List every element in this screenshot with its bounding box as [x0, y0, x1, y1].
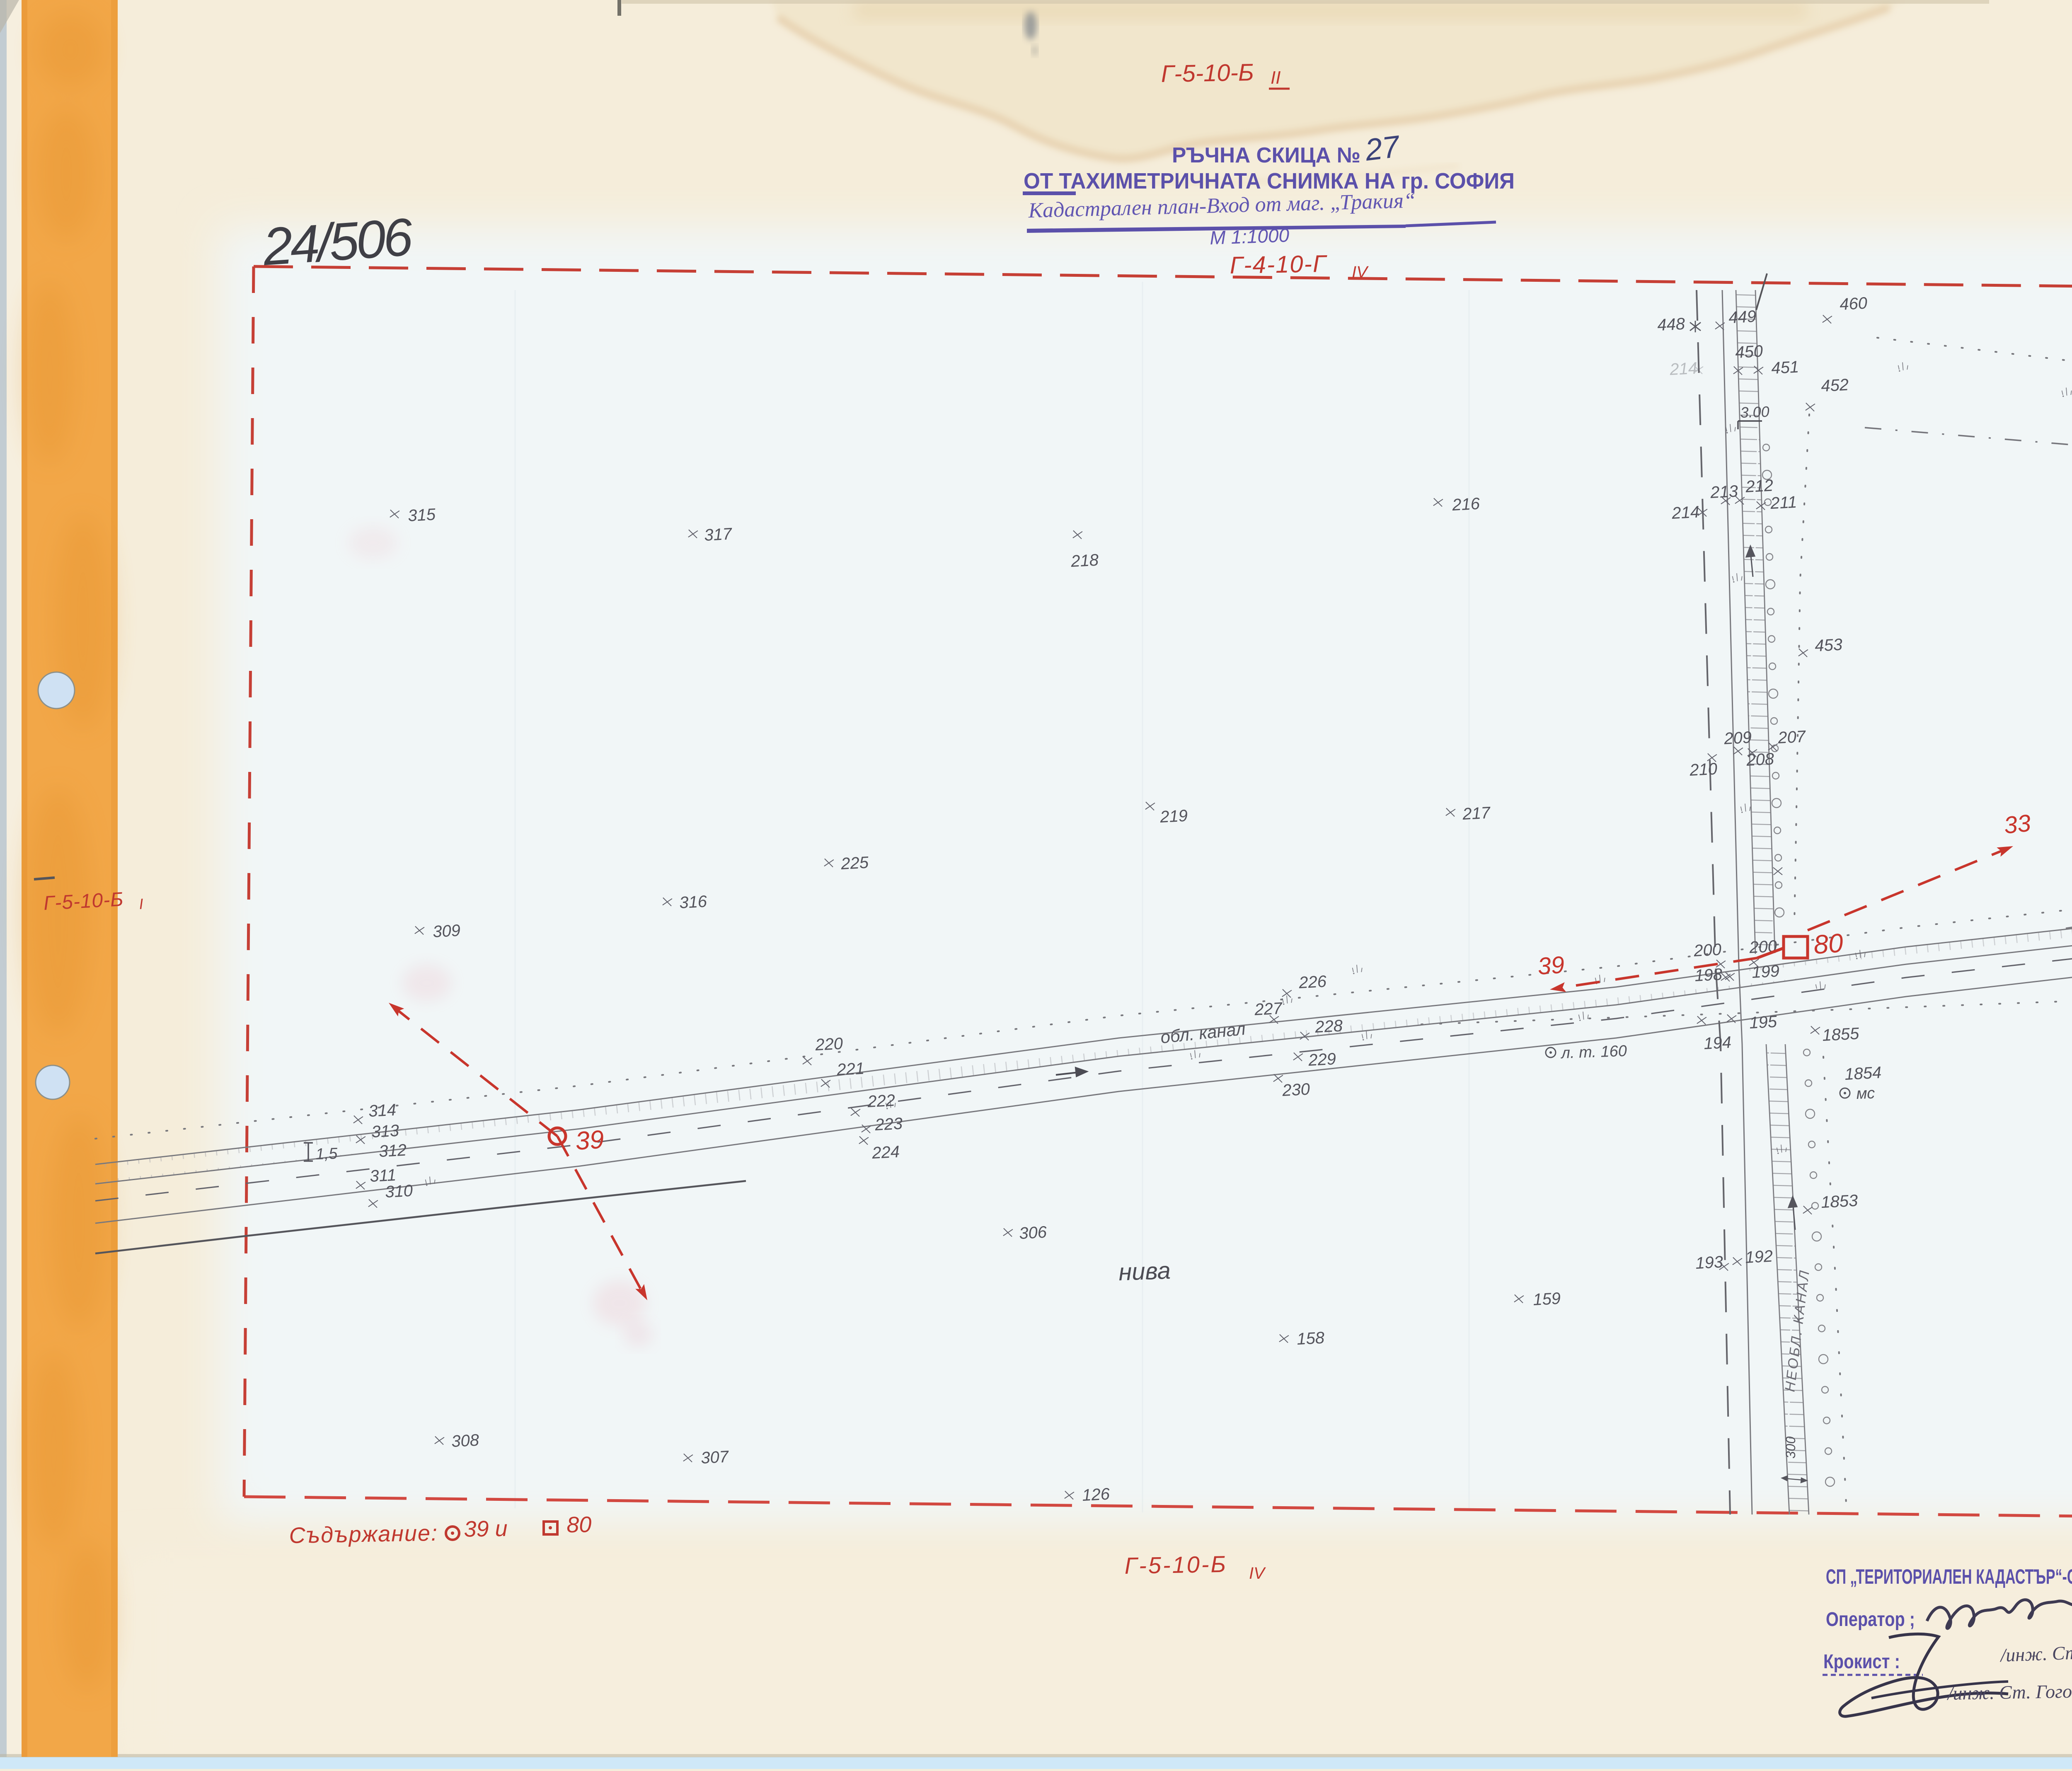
- svg-text:221: 221: [836, 1060, 865, 1079]
- svg-text:3.00: 3.00: [1740, 403, 1769, 421]
- svg-text:158: 158: [1296, 1329, 1325, 1348]
- svg-text:309: 309: [432, 922, 461, 941]
- svg-text:307: 307: [700, 1447, 730, 1467]
- svg-text:Г-5-10-Б: Г-5-10-Б: [1124, 1551, 1227, 1579]
- svg-text:л. т. 160: л. т. 160: [1560, 1042, 1627, 1062]
- svg-text:448: 448: [1657, 315, 1686, 334]
- svg-text:1,5: 1,5: [315, 1145, 338, 1163]
- svg-text:227: 227: [1254, 999, 1283, 1019]
- svg-text:216: 216: [1451, 495, 1481, 515]
- svg-text:195: 195: [1749, 1013, 1778, 1032]
- svg-text:214: 214: [1669, 359, 1698, 379]
- svg-text:/инж. Ст. Гогов/: /инж. Ст. Гогов/: [1946, 1680, 2072, 1704]
- svg-text:39: 39: [574, 1125, 605, 1156]
- svg-text:208: 208: [1745, 750, 1775, 770]
- svg-text:219: 219: [1159, 807, 1188, 826]
- svg-text:199: 199: [1751, 962, 1780, 982]
- svg-text:Оператор ;: Оператор ;: [1826, 1609, 1915, 1631]
- svg-text:451: 451: [1771, 358, 1799, 377]
- svg-text:229: 229: [1307, 1050, 1336, 1069]
- svg-text:308: 308: [451, 1431, 480, 1451]
- svg-text:1854: 1854: [1844, 1063, 1882, 1084]
- svg-text:217: 217: [1462, 803, 1491, 823]
- svg-text:218: 218: [1070, 551, 1099, 571]
- svg-text:39 и: 39 и: [464, 1516, 508, 1542]
- svg-text:1853: 1853: [1820, 1191, 1858, 1212]
- svg-text:33: 33: [2003, 810, 2032, 839]
- svg-text:198: 198: [1694, 965, 1723, 985]
- svg-text:209: 209: [1723, 728, 1752, 748]
- svg-text:СП „ТЕРИТОРИАЛЕН КАДАСТЪР“-СОФ: СП „ТЕРИТОРИАЛЕН КАДАСТЪР“-СОФИЯ: [1826, 1565, 2072, 1588]
- svg-text:ОТ ТАХИМЕТРИЧНАТА СНИМКА НА гр: ОТ ТАХИМЕТРИЧНАТА СНИМКА НА гр. СОФИЯ: [1024, 169, 1515, 194]
- svg-text:452: 452: [1820, 376, 1849, 395]
- svg-text:24/506: 24/506: [261, 207, 415, 277]
- svg-text:80: 80: [566, 1512, 592, 1537]
- svg-text:39: 39: [1537, 951, 1565, 980]
- svg-text:200: 200: [1693, 941, 1722, 960]
- svg-text:214: 214: [1671, 503, 1700, 523]
- svg-text:Съдържание:: Съдържание:: [289, 1521, 438, 1548]
- svg-text:222: 222: [867, 1091, 896, 1111]
- svg-text:460: 460: [1839, 294, 1868, 314]
- svg-text:228: 228: [1314, 1017, 1343, 1037]
- svg-text:1855: 1855: [1822, 1024, 1860, 1045]
- svg-text:194: 194: [1703, 1033, 1732, 1053]
- svg-text:300: 300: [1783, 1436, 1798, 1459]
- svg-text:159: 159: [1532, 1290, 1561, 1309]
- svg-text:207: 207: [1777, 727, 1807, 747]
- svg-text:211: 211: [1769, 493, 1797, 513]
- svg-text:224: 224: [871, 1143, 900, 1162]
- svg-text:313: 313: [371, 1122, 399, 1141]
- svg-text:210: 210: [1689, 760, 1718, 779]
- svg-text:200: 200: [1748, 937, 1777, 957]
- svg-text:225: 225: [840, 854, 869, 873]
- svg-text:IV: IV: [1249, 1564, 1266, 1582]
- svg-text:223: 223: [874, 1115, 903, 1134]
- svg-text:Г-5-10-Б: Г-5-10-Б: [1161, 59, 1254, 87]
- svg-text:310: 310: [385, 1182, 413, 1201]
- svg-text:317: 317: [704, 525, 733, 544]
- svg-text:220: 220: [814, 1035, 843, 1054]
- svg-text:80: 80: [1813, 928, 1844, 960]
- svg-text:212: 212: [1745, 477, 1774, 496]
- svg-text:Крокист :: Крокист :: [1823, 1651, 1900, 1673]
- svg-text:нива: нива: [1118, 1257, 1171, 1286]
- svg-text:306: 306: [1019, 1223, 1048, 1243]
- svg-text:М 1:1000: М 1:1000: [1209, 224, 1290, 249]
- svg-text:126: 126: [1082, 1485, 1111, 1505]
- svg-text:РЪЧНА СКИЦА №: РЪЧНА СКИЦА №: [1172, 143, 1360, 167]
- svg-text:230: 230: [1281, 1080, 1310, 1100]
- svg-text:II: II: [1271, 68, 1280, 88]
- svg-text:450: 450: [1735, 342, 1763, 362]
- svg-text:192: 192: [1745, 1247, 1773, 1267]
- svg-text:Г-4-10-Г: Г-4-10-Г: [1230, 250, 1328, 279]
- svg-text:I: I: [138, 895, 143, 912]
- svg-text:IV: IV: [1352, 263, 1369, 281]
- svg-text:226: 226: [1298, 973, 1327, 992]
- svg-text:мс: мс: [1856, 1084, 1875, 1103]
- svg-text:Г-5-10-Б: Г-5-10-Б: [43, 888, 124, 915]
- svg-text:314: 314: [368, 1101, 397, 1120]
- svg-text:312: 312: [378, 1141, 407, 1161]
- svg-text:316: 316: [679, 893, 708, 912]
- svg-text:27: 27: [1363, 129, 1403, 167]
- svg-text:449: 449: [1728, 307, 1757, 327]
- svg-text:315: 315: [407, 506, 436, 525]
- svg-text:453: 453: [1814, 636, 1843, 655]
